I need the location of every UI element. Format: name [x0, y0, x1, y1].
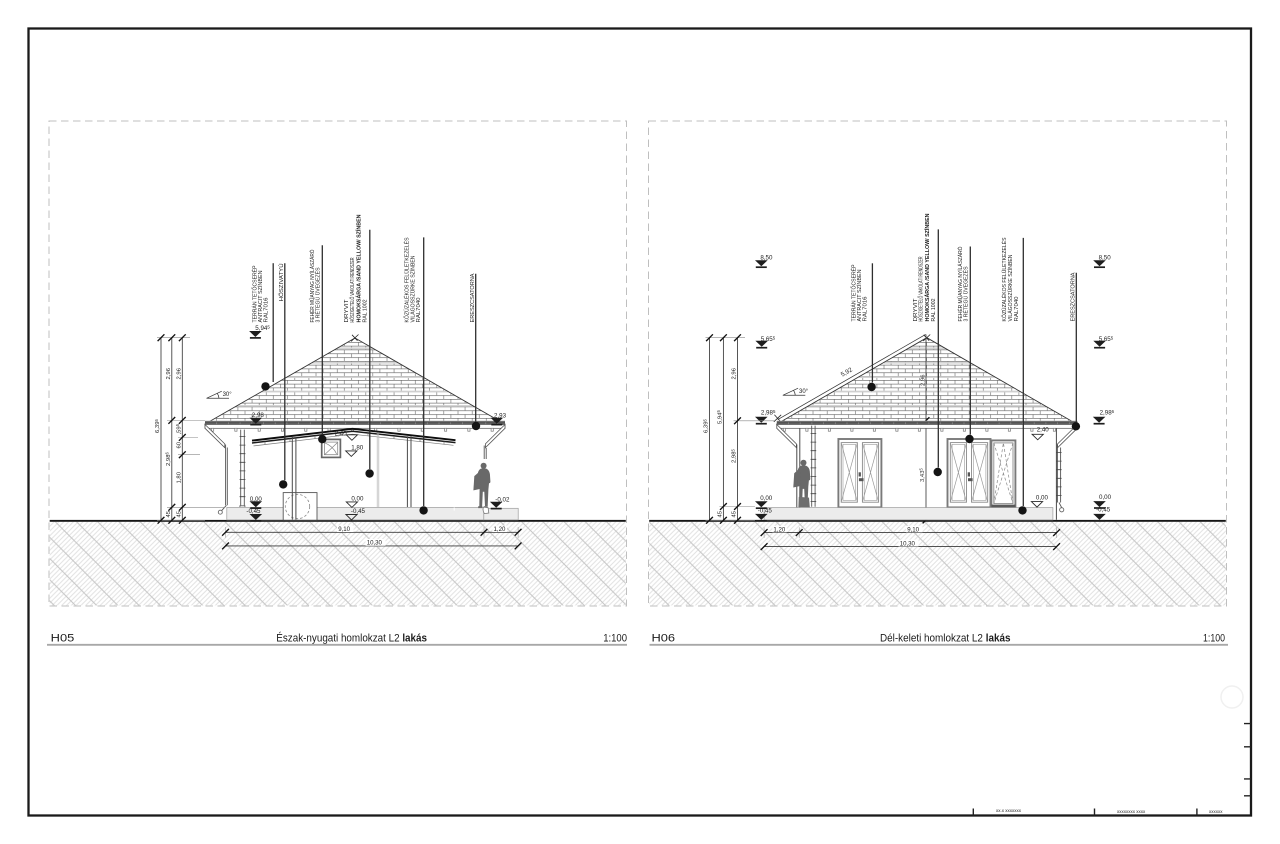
svg-text:1,20: 1,20 — [773, 527, 785, 534]
svg-text:2,96: 2,96 — [732, 367, 738, 379]
svg-text:RAL 1002: RAL 1002 — [931, 298, 937, 321]
svg-text:RAL7040: RAL7040 — [1014, 296, 1020, 321]
svg-text:xxxxxxxx xxxx: xxxxxxxx xxxx — [1117, 809, 1146, 814]
svg-text:RAL 1002: RAL 1002 — [362, 299, 368, 322]
svg-text:1:100: 1:100 — [603, 633, 627, 645]
svg-text:0,00: 0,00 — [351, 495, 364, 502]
svg-text:HOMOKSÁRGA /SAND YELLOW/ SZÍNB: HOMOKSÁRGA /SAND YELLOW/ SZÍNBEN — [923, 213, 931, 321]
svg-text:30°: 30° — [223, 392, 233, 398]
svg-text:2,96: 2,96 — [166, 367, 172, 379]
svg-text:-0,02: -0,02 — [495, 496, 510, 503]
svg-text:-0,45: -0,45 — [1096, 507, 1111, 514]
svg-text:3 RÉTEGŰ ÜVEGEZÉS: 3 RÉTEGŰ ÜVEGEZÉS — [963, 266, 970, 322]
svg-text:1,80: 1,80 — [177, 471, 183, 483]
svg-text:ERESZCSATORNA: ERESZCSATORNA — [470, 273, 476, 323]
svg-text:Észak-nyugati homlokzat L2 lak: Észak-nyugati homlokzat L2 lakás — [276, 632, 427, 645]
svg-text:2,93: 2,93 — [494, 413, 507, 420]
svg-text:0,00: 0,00 — [1036, 495, 1049, 502]
svg-text:9,10: 9,10 — [338, 526, 350, 533]
svg-text:1:100: 1:100 — [1203, 633, 1225, 645]
svg-text:45: 45 — [166, 510, 172, 517]
svg-text:45: 45 — [718, 510, 724, 517]
svg-text:8,50: 8,50 — [760, 254, 773, 261]
svg-text:60: 60 — [177, 441, 183, 448]
svg-text:1,80: 1,80 — [351, 444, 364, 451]
svg-text:8,50: 8,50 — [1099, 254, 1112, 261]
svg-text:HOMOKSÁRGA /SAND YELLOW/ SZÍNB: HOMOKSÁRGA /SAND YELLOW/ SZÍNBEN — [354, 214, 362, 322]
svg-text:30°: 30° — [799, 389, 809, 395]
svg-text:RAL7016: RAL7016 — [264, 297, 270, 322]
svg-text:Dél-keleti homlokzat L2 lakás: Dél-keleti homlokzat L2 lakás — [880, 633, 1011, 645]
svg-text:-0,45: -0,45 — [351, 508, 366, 515]
svg-text:2,40: 2,40 — [335, 431, 348, 438]
svg-text:10,30: 10,30 — [900, 540, 916, 547]
svg-text:2,40: 2,40 — [1037, 427, 1050, 434]
svg-text:H05: H05 — [51, 633, 75, 645]
svg-text:45: 45 — [177, 510, 183, 517]
svg-text:ERESZCSATORNA: ERESZCSATORNA — [1071, 272, 1077, 322]
svg-text:0,00: 0,00 — [250, 496, 263, 503]
svg-text:H06: H06 — [652, 633, 676, 645]
svg-text:-0,45: -0,45 — [246, 508, 261, 515]
svg-text:0,00: 0,00 — [760, 495, 773, 502]
svg-text:RAL7016: RAL7016 — [863, 296, 869, 321]
svg-text:3 RÉTEGŰ ÜVEGEZÉS: 3 RÉTEGŰ ÜVEGEZÉS — [315, 267, 322, 323]
svg-text:xxxxxx: xxxxxx — [1209, 809, 1223, 814]
svg-text:HŐSZIVATYÚ: HŐSZIVATYÚ — [278, 263, 285, 301]
svg-text:HŐSZIGETELŐ VAKOLATI RENDSZER: HŐSZIGETELŐ VAKOLATI RENDSZER — [918, 256, 925, 321]
svg-text:HŐSZIGETELŐ VAKOLATI RENDSZER: HŐSZIGETELŐ VAKOLATI RENDSZER — [349, 257, 356, 322]
svg-text:45: 45 — [732, 510, 738, 517]
svg-text:1,20: 1,20 — [494, 526, 506, 533]
svg-text:-0,45: -0,45 — [758, 508, 773, 515]
svg-text:0,00: 0,00 — [1099, 494, 1112, 501]
svg-text:9,10: 9,10 — [907, 527, 919, 534]
svg-text:xx.x xxxxxxx: xx.x xxxxxxx — [996, 808, 1022, 813]
svg-text:2,96: 2,96 — [177, 367, 183, 379]
svg-text:10,30: 10,30 — [367, 540, 383, 547]
svg-text:2,98: 2,98 — [252, 412, 265, 419]
svg-text:RAL7040: RAL7040 — [416, 297, 422, 322]
